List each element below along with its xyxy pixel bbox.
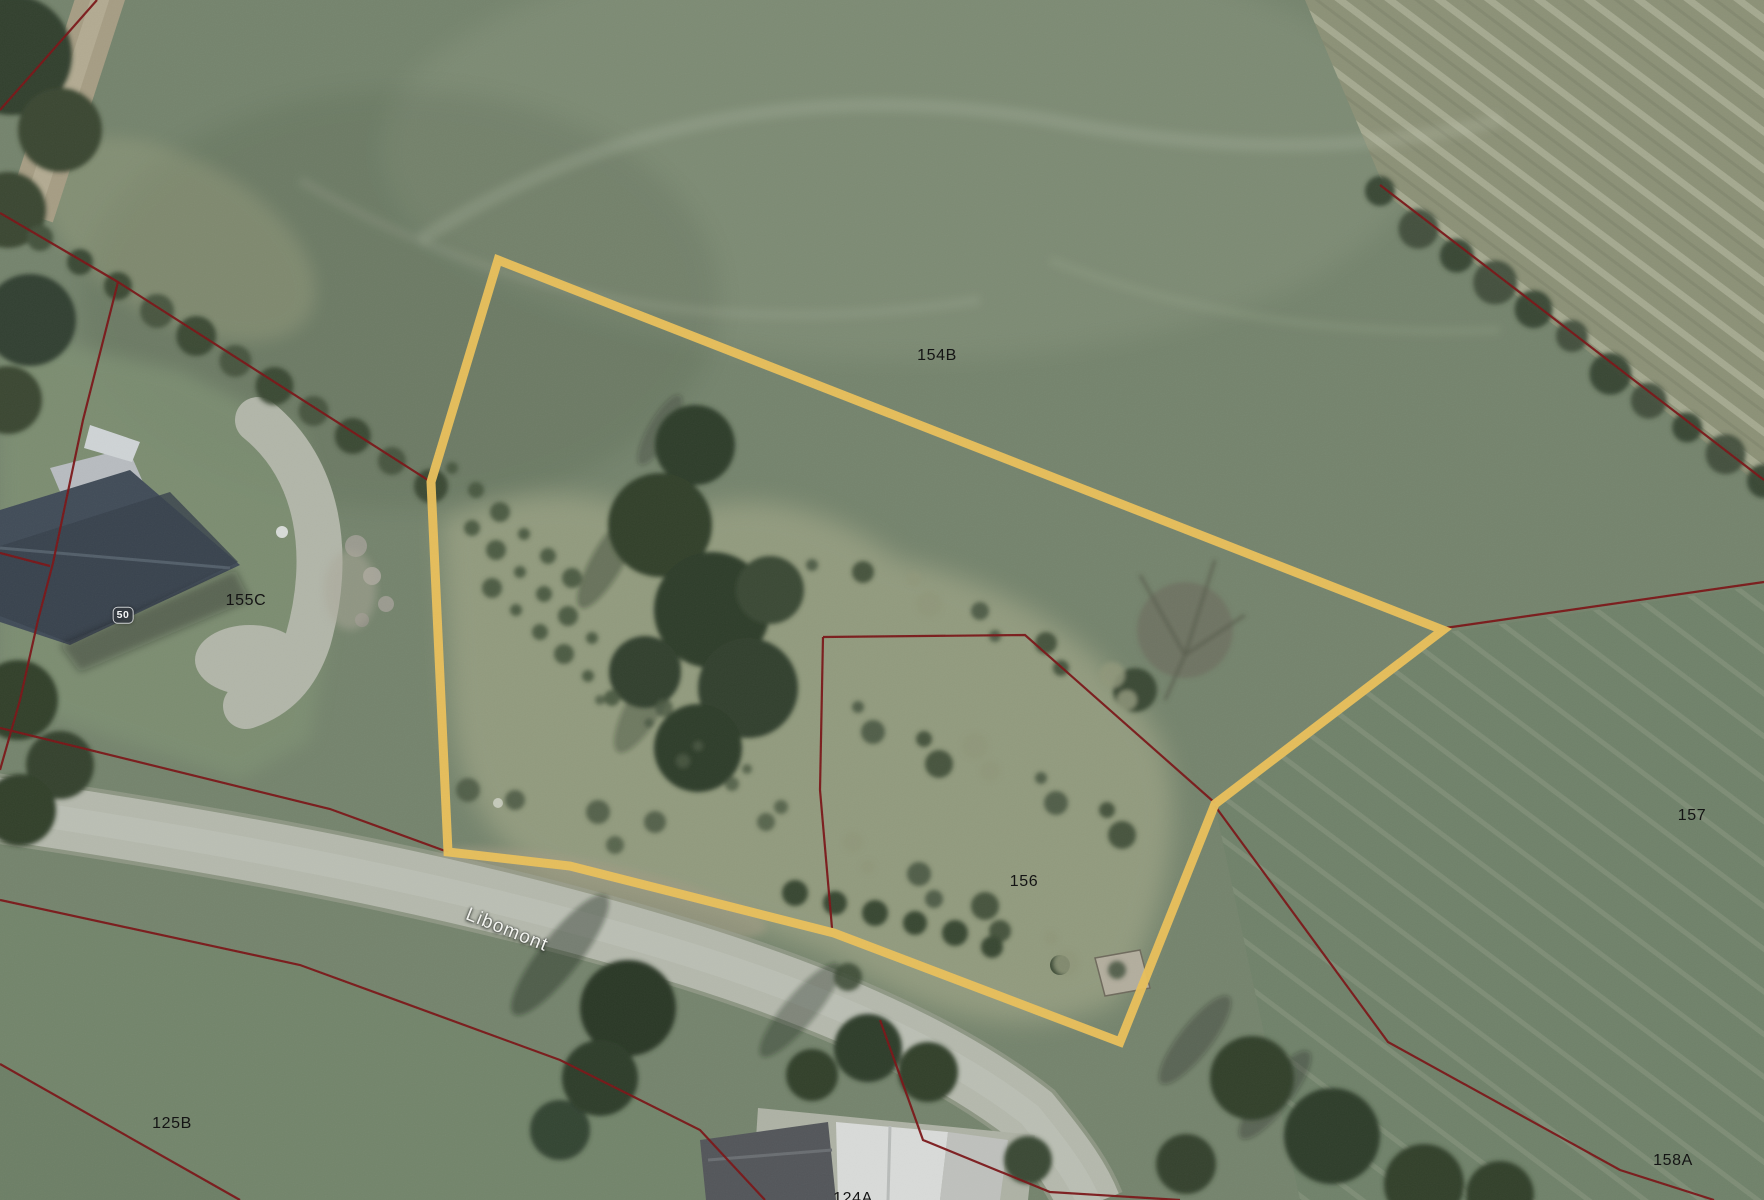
map-canvas[interactable]: 154B 155C 157 156 125B 158A 124A 50 Libo… [0, 0, 1764, 1200]
parcel-label-125b: 125B [152, 1116, 192, 1132]
parcel-label-158a: 158A [1653, 1153, 1693, 1169]
house-number-badge: 50 [113, 607, 134, 624]
parcel-label-154b: 154B [917, 348, 957, 364]
parcel-label-157: 157 [1678, 808, 1707, 824]
parcel-label-124a: 124A [833, 1191, 873, 1200]
parcel-label-156: 156 [1010, 874, 1039, 890]
parcel-label-155c: 155C [226, 593, 267, 609]
